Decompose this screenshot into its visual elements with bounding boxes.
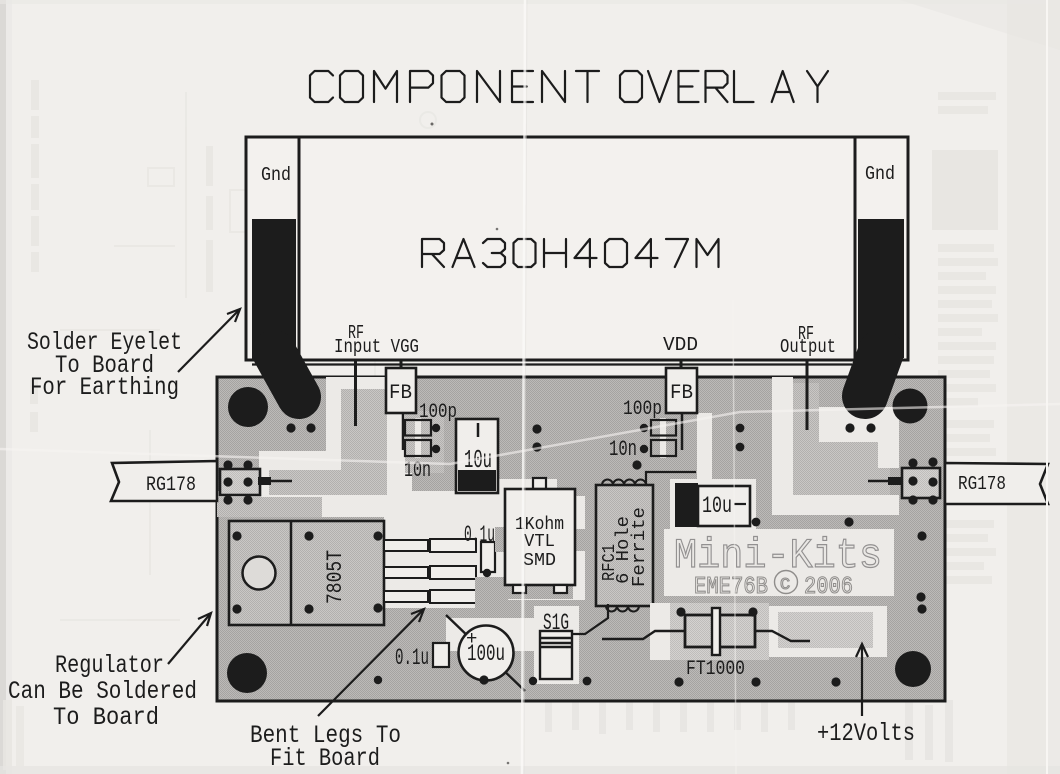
svg-text:10n: 10n	[609, 437, 637, 462]
svg-text:Fit Board: Fit Board	[270, 744, 380, 773]
svg-text:FB: FB	[670, 382, 693, 405]
svg-text:+: +	[466, 628, 477, 650]
svg-text:7805T: 7805T	[323, 550, 348, 604]
svg-text:0.1u: 0.1u	[464, 522, 495, 548]
svg-text:S1G: S1G	[543, 610, 569, 636]
svg-text:To Board: To Board	[53, 703, 159, 732]
svg-text:Output: Output	[780, 336, 836, 358]
svg-text:Ferrite: Ferrite	[630, 507, 650, 587]
svg-text:Can Be Soldered: Can Be Soldered	[8, 677, 197, 706]
svg-text:10u: 10u	[702, 493, 732, 519]
svg-text:+12Volts: +12Volts	[817, 719, 915, 748]
svg-text:Gnd: Gnd	[261, 164, 291, 186]
svg-text:FT1000: FT1000	[686, 658, 745, 681]
svg-text:FB: FB	[389, 382, 412, 405]
svg-text:EME76B: EME76B	[694, 574, 768, 601]
svg-text:Regulator: Regulator	[55, 651, 164, 680]
svg-text:SMD: SMD	[523, 551, 556, 571]
svg-text:Gnd: Gnd	[865, 163, 895, 185]
svg-text:0.1u: 0.1u	[395, 645, 429, 671]
svg-text:100p: 100p	[623, 398, 662, 421]
svg-text:VTL: VTL	[524, 532, 555, 552]
svg-text:VDD: VDD	[663, 334, 698, 356]
svg-text:RG178: RG178	[146, 474, 196, 497]
svg-text:2006: 2006	[804, 574, 853, 601]
svg-text:100p: 100p	[419, 401, 457, 424]
svg-text:For Earthing: For Earthing	[30, 373, 179, 402]
svg-text:Input VGG: Input VGG	[334, 336, 419, 358]
svg-text:RG178: RG178	[958, 473, 1006, 495]
